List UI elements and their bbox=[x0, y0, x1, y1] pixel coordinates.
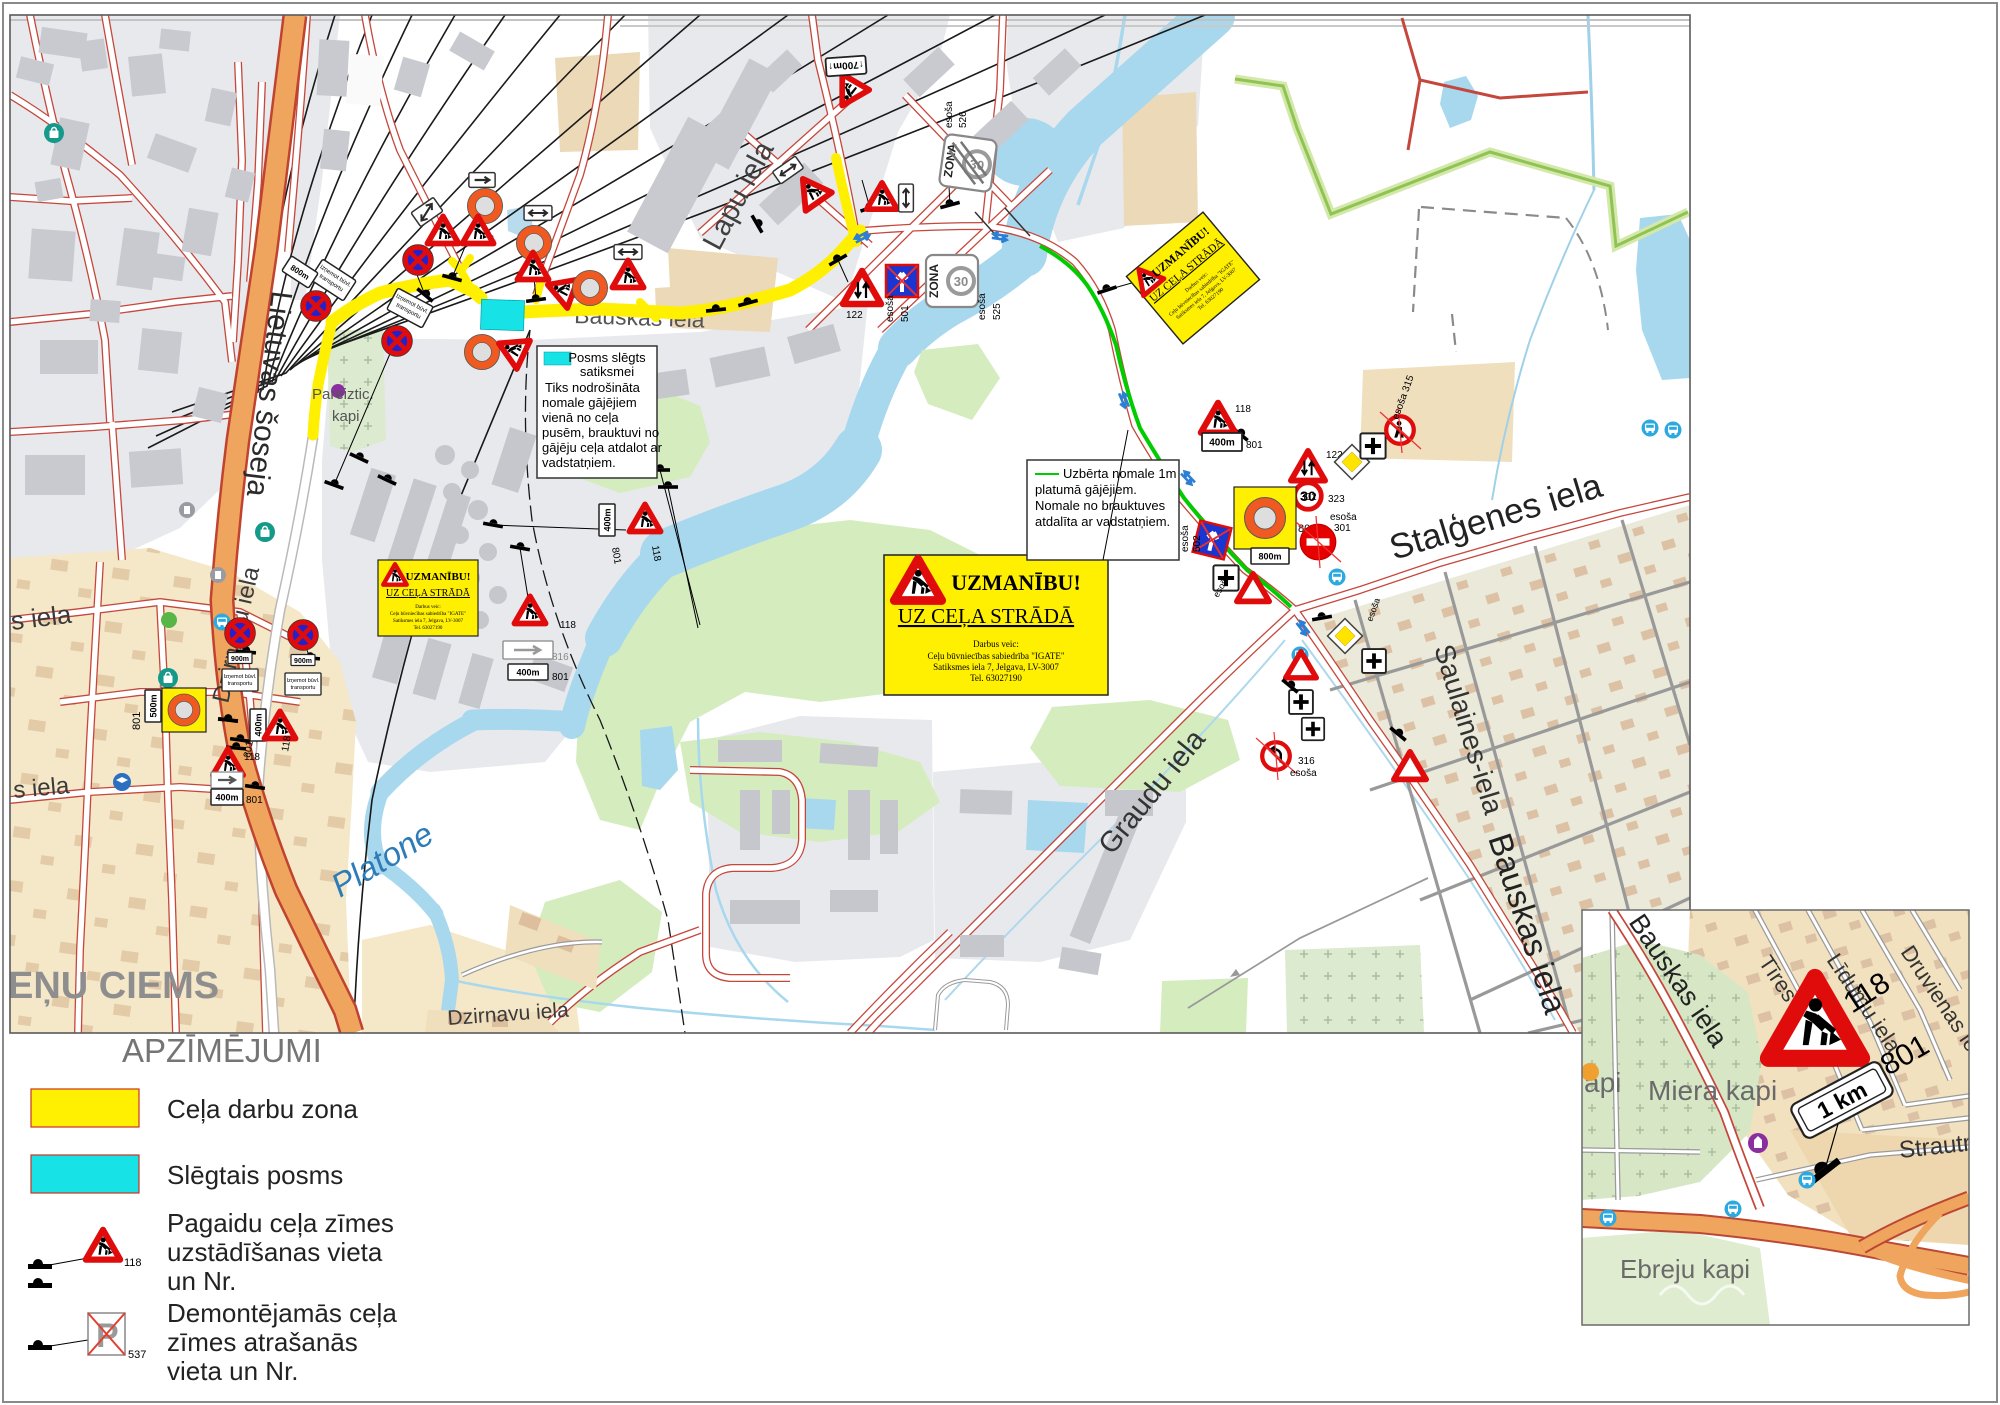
svg-text:esoša: esoša bbox=[977, 293, 988, 320]
svg-text:un Nr.: un Nr. bbox=[167, 1266, 236, 1296]
svg-text:Darbus veic:: Darbus veic: bbox=[415, 605, 440, 610]
svg-text:esoša: esoša bbox=[944, 101, 955, 128]
svg-text:transportu: transportu bbox=[291, 685, 316, 691]
svg-text:Ceļa darbu zona: Ceļa darbu zona bbox=[167, 1094, 358, 1124]
svg-text:118: 118 bbox=[124, 1257, 142, 1269]
svg-text:501: 501 bbox=[900, 305, 911, 322]
svg-text:EŅU CIEMS: EŅU CIEMS bbox=[8, 965, 219, 1007]
svg-text:537: 537 bbox=[128, 1349, 146, 1361]
svg-text:UZMANĪBU!: UZMANĪBU! bbox=[951, 570, 1081, 595]
svg-text:502: 502 bbox=[1192, 535, 1203, 552]
svg-text:esoša: esoša bbox=[885, 295, 896, 322]
svg-text:526: 526 bbox=[958, 111, 969, 128]
svg-text:400m: 400m bbox=[603, 508, 613, 531]
svg-text:Demontējamās ceļa: Demontējamās ceļa bbox=[167, 1298, 397, 1328]
svg-text:301: 301 bbox=[1334, 523, 1351, 534]
svg-text:Tiks nodrošināta: Tiks nodrošināta bbox=[545, 380, 641, 395]
svg-text:Izņemot būvl.: Izņemot būvl. bbox=[287, 678, 320, 684]
svg-text:vieta un Nr.: vieta un Nr. bbox=[167, 1356, 299, 1386]
svg-text:nomale gājējiem: nomale gājējiem bbox=[542, 395, 637, 410]
svg-text:Pagaidu ceļa zīmes: Pagaidu ceļa zīmes bbox=[167, 1208, 394, 1238]
svg-text:323: 323 bbox=[1328, 494, 1345, 505]
svg-text:Satiksmes iela 7, Jelgava, LV-: Satiksmes iela 7, Jelgava, LV-3007 bbox=[393, 619, 463, 624]
svg-text:esoša: esoša bbox=[1330, 512, 1357, 523]
svg-text:801: 801 bbox=[1246, 440, 1263, 451]
svg-text:atdalīta ar vadstatņiem.: atdalīta ar vadstatņiem. bbox=[1035, 514, 1170, 529]
svg-text:400m: 400m bbox=[1209, 438, 1235, 449]
svg-text:Ceļu būvniecības sabiedrība "I: Ceļu būvniecības sabiedrība "IGATE" bbox=[927, 651, 1064, 662]
svg-text:Darbus veic:: Darbus veic: bbox=[973, 639, 1019, 649]
svg-text:platumā gājējiem.: platumā gājējiem. bbox=[1035, 482, 1137, 497]
svg-text:esoša: esoša bbox=[1290, 768, 1317, 779]
svg-text:400m: 400m bbox=[254, 713, 264, 736]
svg-text:525: 525 bbox=[992, 303, 1003, 320]
svg-text:Miera kapi: Miera kapi bbox=[1648, 1075, 1777, 1106]
svg-text:esoša: esoša bbox=[1180, 525, 1191, 552]
svg-text:118: 118 bbox=[244, 752, 260, 763]
svg-text:816: 816 bbox=[552, 652, 569, 663]
svg-text:118: 118 bbox=[560, 620, 576, 631]
svg-text:APZĪMĒJUMI: APZĪMĒJUMI bbox=[122, 1032, 322, 1069]
svg-text:Izņemot būvl.: Izņemot būvl. bbox=[224, 674, 257, 680]
svg-text:Ceļu būvniecības sabiedrība "I: Ceļu būvniecības sabiedrība "IGATE" bbox=[390, 612, 466, 617]
svg-text:Posms slēgts: Posms slēgts bbox=[568, 350, 646, 365]
svg-text:500m: 500m bbox=[149, 694, 159, 717]
svg-text:Satiksmes iela 7, Jelgava, LV-: Satiksmes iela 7, Jelgava, LV-3007 bbox=[933, 662, 1059, 672]
svg-text:Slēgtais posms: Slēgtais posms bbox=[167, 1160, 343, 1190]
svg-text:122: 122 bbox=[846, 310, 863, 321]
svg-text:vienā no ceļa: vienā no ceļa bbox=[542, 410, 619, 425]
svg-text:302: 302 bbox=[1300, 492, 1317, 503]
svg-text:400m: 400m bbox=[516, 668, 539, 678]
svg-text:900m: 900m bbox=[294, 658, 312, 665]
svg-text:pusēm, brauktuvi no: pusēm, brauktuvi no bbox=[542, 425, 659, 440]
svg-text:800m: 800m bbox=[1258, 552, 1281, 562]
svg-text:400m: 400m bbox=[215, 793, 238, 803]
svg-text:118: 118 bbox=[1235, 404, 1251, 415]
svg-text:UZ CEĻA STRĀDĀ: UZ CEĻA STRĀDĀ bbox=[898, 604, 1075, 628]
svg-text:Ebreju kapi: Ebreju kapi bbox=[1620, 1254, 1750, 1284]
svg-text:801: 801 bbox=[131, 712, 143, 730]
svg-text:UZ CEĻA STRĀDĀ: UZ CEĻA STRĀDĀ bbox=[386, 588, 471, 599]
svg-text:satiksmei: satiksmei bbox=[580, 364, 634, 379]
svg-text:UZMANĪBU!: UZMANĪBU! bbox=[406, 571, 471, 583]
svg-text:transportu: transportu bbox=[228, 681, 253, 687]
svg-text:801: 801 bbox=[552, 672, 569, 683]
svg-text:801: 801 bbox=[246, 795, 263, 806]
svg-text:Tel. 63027190: Tel. 63027190 bbox=[970, 673, 1022, 683]
svg-text:316: 316 bbox=[1298, 756, 1315, 767]
svg-text:Pareiztic.: Pareiztic. bbox=[312, 386, 374, 403]
svg-text:vadstatņiem.: vadstatņiem. bbox=[542, 455, 616, 470]
svg-text:Nomale no brauktuves: Nomale no brauktuves bbox=[1035, 498, 1166, 513]
svg-text:s iela: s iela bbox=[12, 772, 71, 804]
svg-text:gājēju ceļa atdalot ar: gājēju ceļa atdalot ar bbox=[542, 440, 663, 455]
svg-text:900m: 900m bbox=[231, 656, 249, 663]
svg-text:Tel. 63027190: Tel. 63027190 bbox=[414, 626, 443, 631]
svg-text:uzstādīšanas vieta: uzstādīšanas vieta bbox=[167, 1237, 383, 1267]
svg-text:zīmes atrašanās: zīmes atrašanās bbox=[167, 1327, 358, 1357]
svg-text:kapi: kapi bbox=[332, 408, 360, 425]
